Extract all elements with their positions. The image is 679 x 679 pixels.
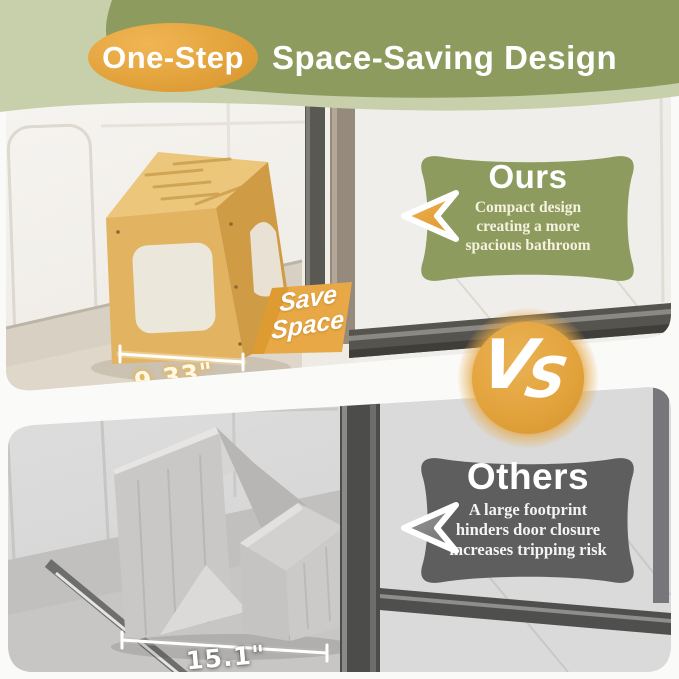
arrow-left-icon-gray [394,496,464,558]
page-title: Space-Saving Design [272,39,617,77]
infographic-canvas: Save Space 9.33" [0,0,679,679]
others-heading: Others [405,456,651,498]
one-step-badge-label: One-Step [102,40,244,76]
arrow-left-icon-orange [394,184,464,246]
one-step-badge: One-Step [88,23,258,92]
vs-emblem: V S [458,308,598,448]
